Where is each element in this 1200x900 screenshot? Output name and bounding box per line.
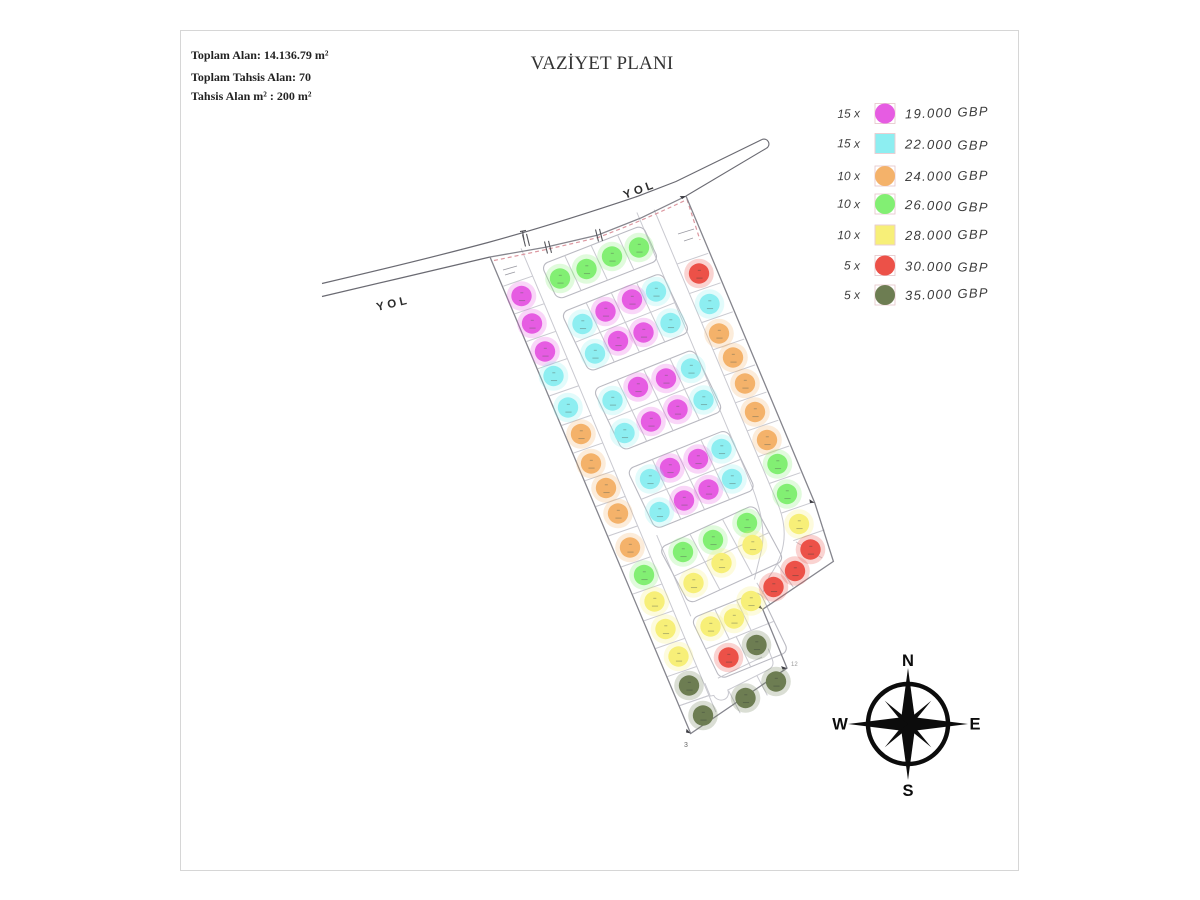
svg-text:26.000 GBP: 26.000 GBP — [904, 197, 989, 215]
svg-text:12: 12 — [791, 662, 798, 668]
svg-text:30.000 GBP: 30.000 GBP — [905, 259, 989, 275]
svg-text:19.000 GBP: 19.000 GBP — [905, 104, 989, 122]
svg-text:E: E — [969, 716, 980, 734]
svg-text:Toplam Tahsis Alan: 70: Toplam Tahsis Alan: 70 — [191, 70, 311, 84]
svg-text:10 x: 10 x — [837, 197, 861, 212]
svg-text:VAZİYET PLANI: VAZİYET PLANI — [531, 53, 674, 74]
svg-text:Toplam Alan: 14.136.79 m²: Toplam Alan: 14.136.79 m² — [191, 48, 329, 62]
svg-text:5 x: 5 x — [844, 288, 861, 303]
svg-text:10 x: 10 x — [837, 169, 861, 183]
svg-text:N: N — [902, 652, 914, 670]
svg-text:15 x: 15 x — [837, 136, 861, 150]
svg-text:W: W — [832, 716, 848, 734]
svg-text:28.000 GBP: 28.000 GBP — [904, 227, 989, 243]
svg-text:24.000 GBP: 24.000 GBP — [904, 168, 989, 184]
svg-text:35.000 GBP: 35.000 GBP — [905, 285, 989, 303]
svg-text:10 x: 10 x — [837, 228, 861, 242]
svg-text:3: 3 — [684, 742, 688, 749]
svg-text:22.000 GBP: 22.000 GBP — [904, 136, 989, 152]
svg-text:5 x: 5 x — [844, 258, 861, 272]
svg-text:Tahsis Alan m² : 200 m²: Tahsis Alan m² : 200 m² — [191, 89, 312, 103]
svg-text:S: S — [902, 782, 913, 800]
svg-text:15 x: 15 x — [837, 106, 861, 121]
